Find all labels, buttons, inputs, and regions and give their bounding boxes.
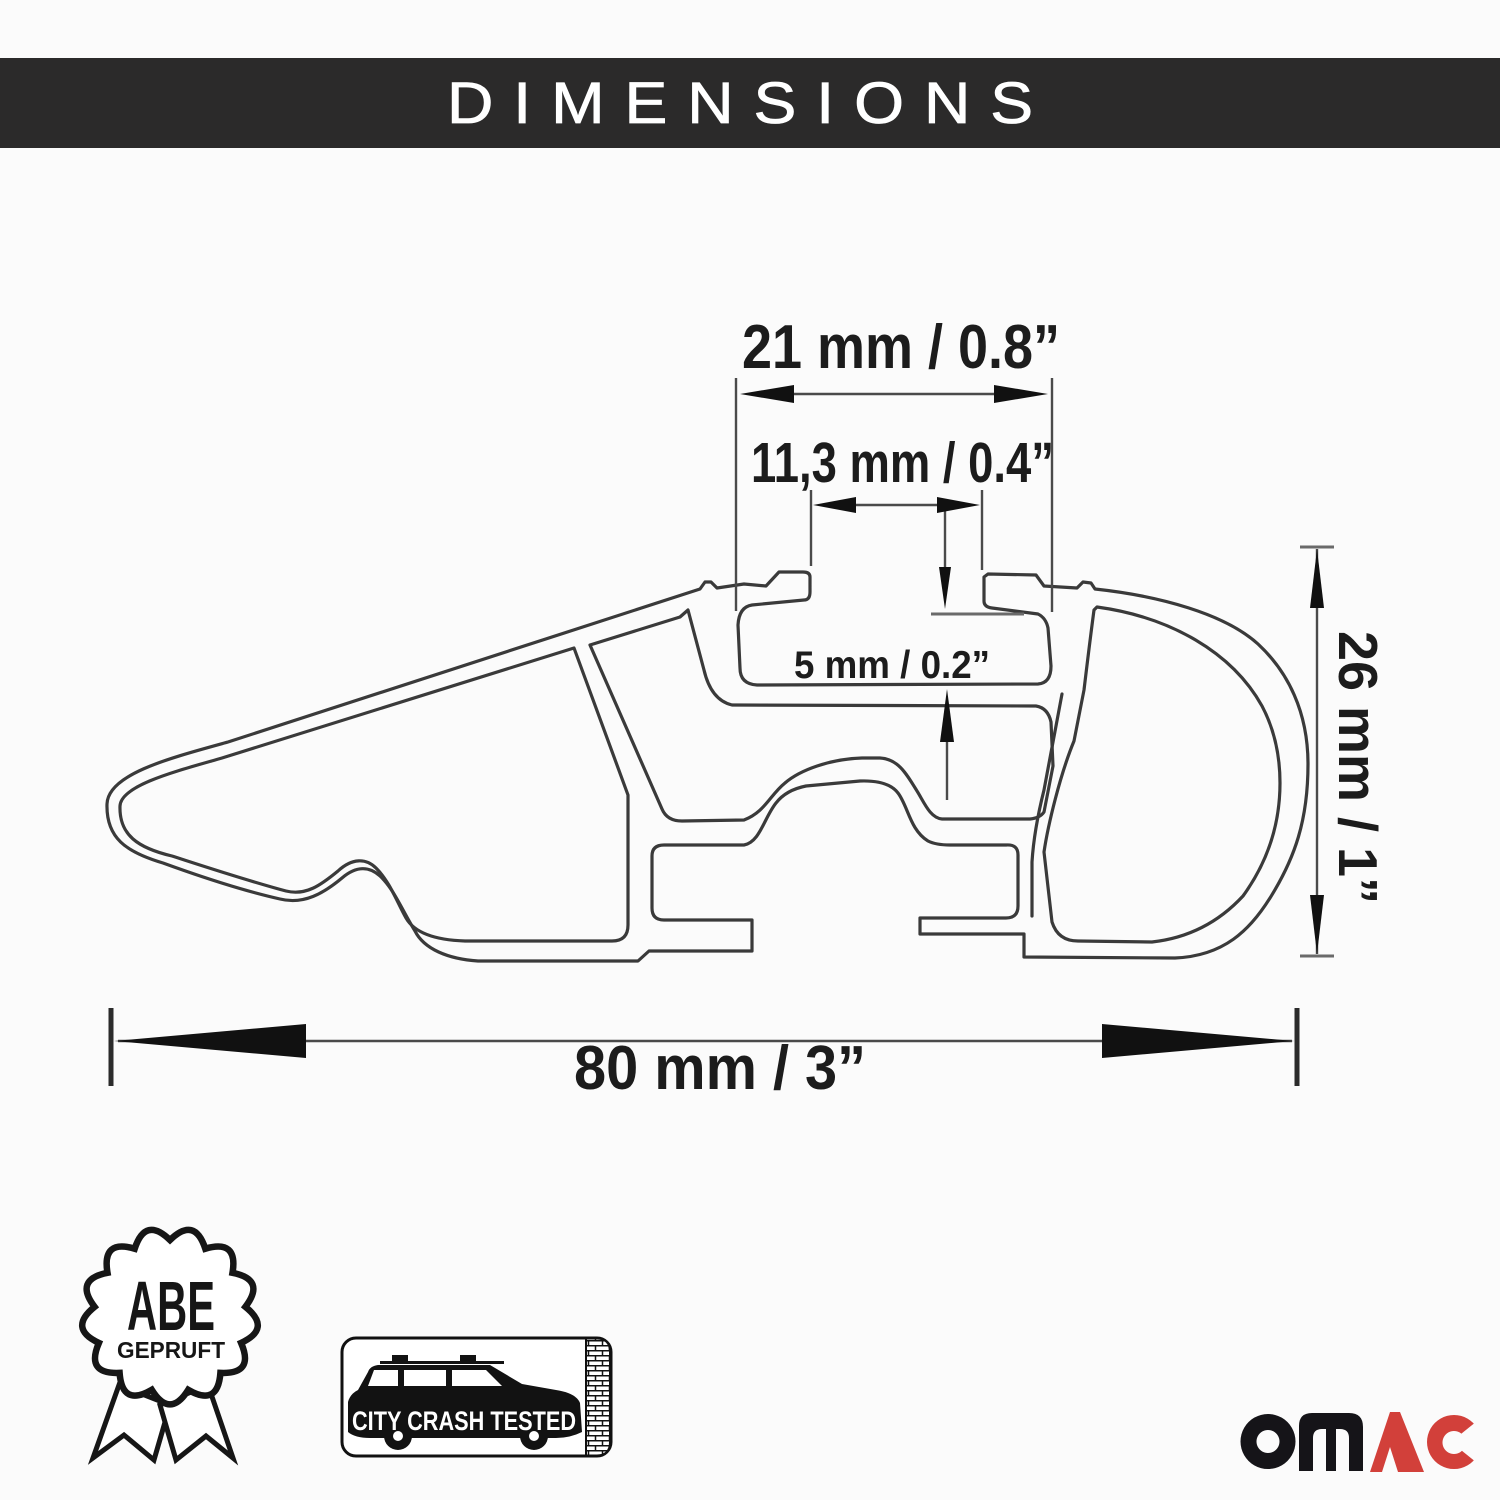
svg-text:DIMENSIONS: DIMENSIONS bbox=[447, 71, 1053, 136]
svg-text:GEPRUFT: GEPRUFT bbox=[117, 1337, 225, 1363]
svg-text:21 mm / 0.8”: 21 mm / 0.8” bbox=[742, 313, 1060, 382]
svg-text:26 mm / 1”: 26 mm / 1” bbox=[1327, 631, 1389, 904]
svg-text:ABE: ABE bbox=[127, 1267, 215, 1345]
svg-text:5 mm / 0.2”: 5 mm / 0.2” bbox=[794, 644, 990, 687]
svg-text:CITY CRASH TESTED: CITY CRASH TESTED bbox=[352, 1406, 576, 1436]
svg-text:80 mm / 3”: 80 mm / 3” bbox=[574, 1034, 866, 1103]
svg-text:11,3 mm / 0.4”: 11,3 mm / 0.4” bbox=[751, 431, 1054, 495]
